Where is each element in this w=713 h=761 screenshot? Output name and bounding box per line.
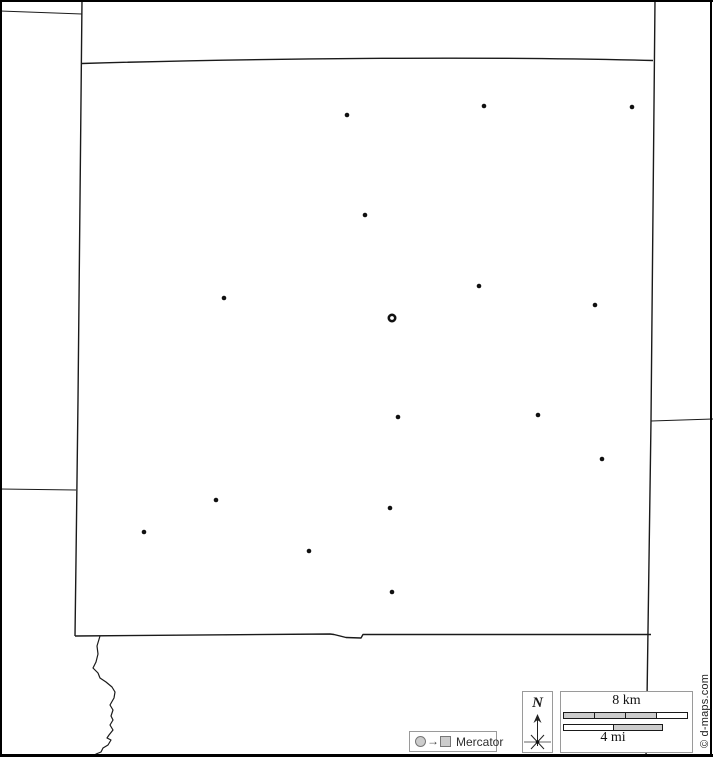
town-dot-marker bbox=[222, 296, 227, 301]
scale-bar-segment bbox=[656, 713, 687, 718]
town-dot-marker bbox=[396, 415, 401, 420]
projection-label: Mercator bbox=[456, 735, 503, 749]
scale-bar-km bbox=[563, 712, 688, 719]
frame-left-edge bbox=[0, 0, 2, 757]
arrow-right-icon: → bbox=[427, 737, 439, 746]
town-dot-marker bbox=[536, 413, 541, 418]
town-dot-marker bbox=[390, 590, 395, 595]
town-dot-marker bbox=[363, 213, 368, 218]
frame-top-edge bbox=[0, 0, 713, 2]
town-dot-marker bbox=[593, 303, 598, 308]
map-canvas bbox=[0, 0, 713, 761]
compass-rose-icon bbox=[523, 712, 552, 752]
projection-legend: → Mercator bbox=[409, 731, 497, 752]
west-boundary-line bbox=[75, 0, 82, 636]
frame-bottom-edge bbox=[0, 754, 713, 757]
globe-circle-icon bbox=[415, 736, 426, 747]
river bbox=[93, 636, 115, 756]
town-dot-marker bbox=[482, 104, 487, 109]
town-dot-marker bbox=[600, 457, 605, 462]
attribution-text: © d-maps.com bbox=[699, 674, 711, 748]
town-dot-marker bbox=[214, 498, 219, 503]
town-dot-marker bbox=[345, 113, 350, 118]
north-label: N bbox=[523, 695, 552, 711]
scale-bar-segment bbox=[625, 713, 656, 718]
scale-bar-segment bbox=[594, 713, 625, 718]
county-north-border bbox=[82, 58, 653, 63]
county-south-border bbox=[75, 634, 651, 638]
east-neighbor-line bbox=[651, 419, 713, 421]
town-dot-marker bbox=[477, 284, 482, 289]
scale-bar-segment bbox=[564, 713, 594, 718]
east-boundary-line bbox=[646, 0, 655, 757]
northwest-neighbor-line bbox=[0, 11, 82, 14]
scale-mi-label: 4 mi bbox=[563, 730, 663, 746]
compass-legend: N bbox=[522, 691, 553, 753]
west-neighbor-line bbox=[0, 489, 76, 490]
county-seat-marker bbox=[389, 315, 395, 321]
town-dot-marker bbox=[388, 506, 393, 511]
frame-right-edge bbox=[710, 0, 712, 757]
scale-legend: 8 km 4 mi bbox=[560, 691, 693, 753]
scale-km-label: 8 km bbox=[561, 693, 692, 709]
map-page: → Mercator N 8 km 4 mi © d-maps.com bbox=[0, 0, 713, 761]
town-dot-marker bbox=[142, 530, 147, 535]
projected-square-icon bbox=[440, 736, 451, 747]
town-dot-marker bbox=[630, 105, 635, 110]
town-dot-marker bbox=[307, 549, 312, 554]
